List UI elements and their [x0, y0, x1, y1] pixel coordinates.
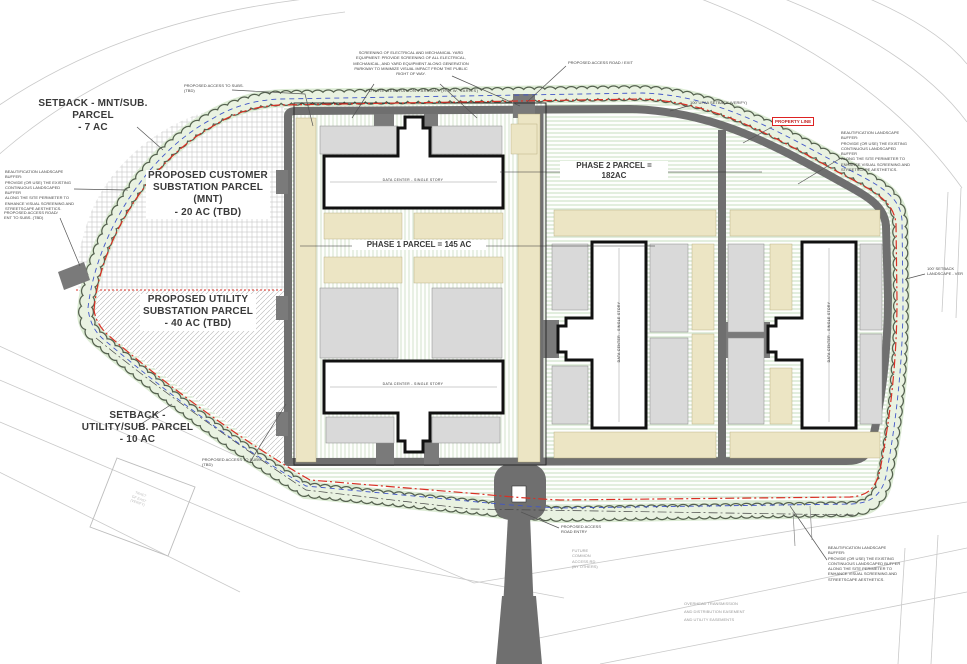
- label-phase2-parcel: PHASE 2 PARCEL = 182AC: [560, 161, 668, 180]
- label-line: PHASE 2 PARCEL =: [562, 161, 666, 171]
- note-beautification-bottom: BEAUTIFICATION LANDSCAPE BUFFER: PROVIDE…: [828, 545, 903, 582]
- label-line: (MNT): [148, 194, 268, 206]
- note-line: ALONG THE SITE PERIMETER TO: [5, 195, 75, 200]
- note-line: LANDSCAPE - VER: [927, 271, 967, 276]
- note-line: (TBD): [184, 88, 244, 93]
- label-line: PROPOSED CUSTOMER: [148, 170, 268, 182]
- note-upaa-setback: 100' UPAA SETBACK (VERIFY): [690, 100, 760, 105]
- note-line: BEAUTIFICATION LANDSCAPE BUFFER:: [828, 545, 903, 556]
- label-line: - 40 AC (TBD): [142, 318, 254, 330]
- note-line: ALONG THE SITE PERIMETER TO: [841, 156, 911, 161]
- label-line: SUBSTATION PARCEL: [148, 182, 268, 194]
- note-generation-parkway: FUTURE GENERATION PARKWAY (R.O.W. VARIES…: [366, 88, 541, 93]
- note-line: OVERHEAD TRANSMISSION: [684, 600, 769, 608]
- label-line: DATA CENTER - SINGLE STORY: [827, 272, 831, 392]
- note-beautification-left: BEAUTIFICATION LANDSCAPE BUFFER: PROVIDE…: [5, 169, 75, 211]
- note-access-road-entry: PROPOSED ACCESS ROAD ENTRY: [561, 524, 611, 535]
- label-line: DATA CENTER - SINGLE STORY: [323, 178, 503, 182]
- label-line: SUBSTATION PARCEL: [142, 306, 254, 318]
- label-line: SETBACK -: [70, 410, 205, 422]
- label-datacenter-east: DATA CENTER - SINGLE STORY: [827, 272, 831, 392]
- label-line: PROPOSED UTILITY: [142, 294, 254, 306]
- note-line: ENHANCE VISUAL SCREENING AND: [828, 571, 903, 576]
- note-line: EQUIPMENT: PROVIDE SCREENING OF ALL ELEC…: [352, 55, 470, 60]
- label-setback-mnt-sub: SETBACK - MNT/SUB. PARCEL - 7 AC: [38, 98, 148, 135]
- note-line: ENT TO SUBS. (TBD): [4, 215, 64, 220]
- note-line: PROPERTY LINE: [775, 119, 811, 125]
- label-datacenter-west: DATA CENTER - SINGLE STORY: [617, 272, 621, 392]
- note-line: 100' UPAA SETBACK (VERIFY): [690, 100, 760, 105]
- note-access-road-ent-subs: PROPOSED ACCESS ROAD/ ENT TO SUBS. (TBD): [4, 210, 64, 221]
- note-access-road-exit: PROPOSED ACCESS ROAD / EXIT: [568, 60, 648, 65]
- note-line: (BY OTHERS): [572, 564, 612, 569]
- note-line: CONTINUOUS LANDSCAPED BUFFER: [841, 146, 911, 157]
- note-line: CONTINUOUS LANDSCAPED BUFFER: [5, 185, 75, 196]
- note-future-common-access: FUTURE COMMON ACCESS RD (BY OTHERS): [572, 548, 612, 569]
- main-entry-drive: [494, 464, 546, 664]
- label-line: - 10 AC: [70, 434, 205, 446]
- note-line: BEAUTIFICATION LANDSCAPE BUFFER:: [841, 130, 911, 141]
- label-line: PARCEL: [38, 110, 148, 122]
- label-line: UTILITY/SUB. PARCEL: [70, 422, 205, 434]
- property-line-tag: PROPERTY LINE: [772, 117, 814, 126]
- label-datacenter-north: DATA CENTER - SINGLE STORY: [323, 178, 503, 182]
- label-customer-substation: PROPOSED CUSTOMER SUBSTATION PARCEL (MNT…: [146, 170, 270, 219]
- label-line: PHASE 1 PARCEL = 145 AC: [354, 240, 484, 250]
- note-line: STREETSCAPE AESTHETICS.: [828, 577, 903, 582]
- label-line: DATA CENTER - SINGLE STORY: [323, 382, 503, 386]
- note-line: (TBD): [202, 462, 262, 467]
- note-line: BEAUTIFICATION LANDSCAPE BUFFER:: [5, 169, 75, 180]
- label-line: 182AC: [562, 171, 666, 181]
- note-access-to-subs-top: PROPOSED ACCESS TO SUBS. (TBD): [184, 83, 244, 94]
- note-beautification-right: BEAUTIFICATION LANDSCAPE BUFFER: PROVIDE…: [841, 130, 911, 172]
- note-setback-landscape: 100' SETBACK LANDSCAPE - VER: [927, 266, 967, 277]
- label-line: SETBACK - MNT/SUB.: [38, 98, 148, 110]
- note-line: FUTURE GENERATION PARKWAY (R.O.W. VARIES…: [366, 88, 541, 93]
- site-plan: SETBACK - MNT/SUB. PARCEL - 7 AC PROPOSE…: [0, 0, 967, 664]
- note-access-to-subs-bottom: PROPOSED ACCESS TO SUBS. (TBD): [202, 457, 262, 468]
- note-screening: SCREENING OF ELECTRICAL AND MECHANICAL Y…: [352, 50, 470, 76]
- note-line: PROPOSED ACCESS ROAD / EXIT: [568, 60, 648, 65]
- entry-gate-island: [512, 486, 526, 502]
- note-line: AND DISTRIBUTION EASEMENT: [684, 608, 769, 616]
- label-datacenter-south: DATA CENTER - SINGLE STORY: [323, 382, 503, 386]
- note-line: STREETSCAPE AESTHETICS.: [841, 167, 911, 172]
- label-line: - 7 AC: [38, 122, 148, 134]
- label-line: DATA CENTER - SINGLE STORY: [617, 272, 621, 392]
- label-utility-substation: PROPOSED UTILITY SUBSTATION PARCEL - 40 …: [140, 294, 256, 331]
- note-line: AND UTILITY EASEMENTS: [684, 616, 769, 624]
- label-phase1-parcel: PHASE 1 PARCEL = 145 AC: [352, 240, 486, 250]
- note-line: RIGHT OF WAY.: [352, 71, 470, 76]
- note-easement: OVERHEAD TRANSMISSION AND DISTRIBUTION E…: [684, 600, 769, 624]
- label-setback-utility-sub: SETBACK - UTILITY/SUB. PARCEL - 10 AC: [70, 410, 205, 447]
- note-line: ROAD ENTRY: [561, 529, 611, 534]
- label-line: - 20 AC (TBD): [148, 207, 268, 219]
